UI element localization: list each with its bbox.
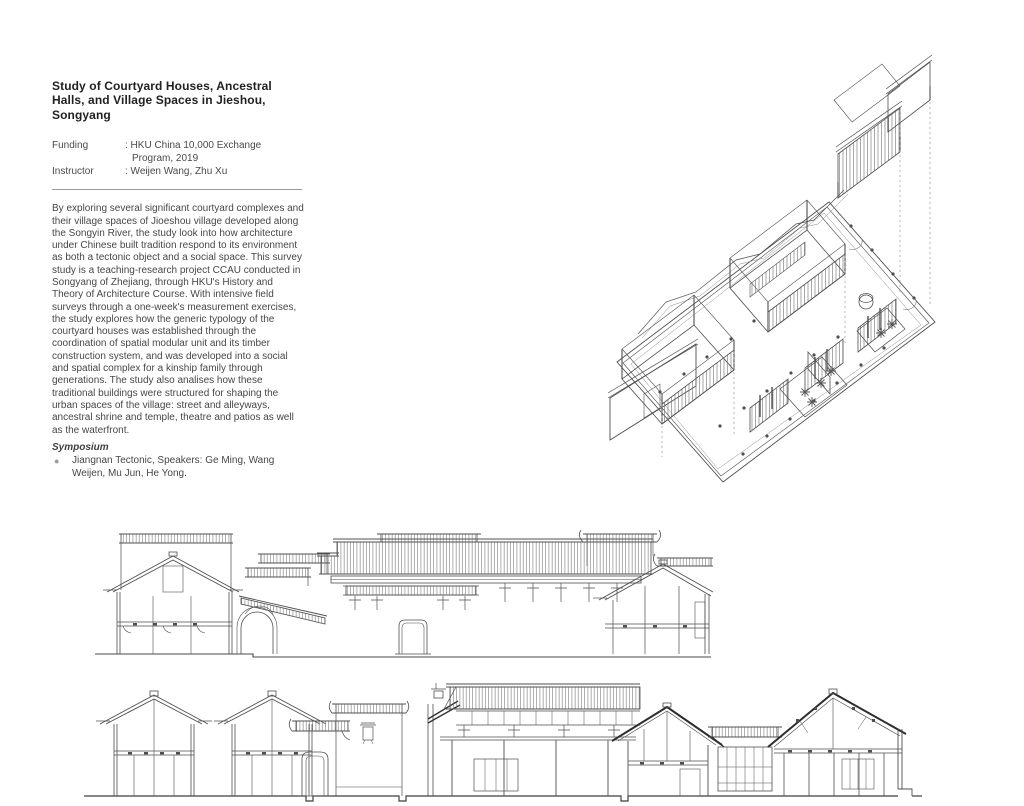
ground-floor-plate: [617, 202, 935, 482]
instructor-label: Instructor: [52, 165, 125, 178]
gate-wall: [289, 701, 409, 796]
portfolio-page: Study of Courtyard Houses, Ancestral Hal…: [0, 0, 1024, 806]
funding-value-line1: : HKU China 10,000 Exchange: [125, 139, 306, 152]
instructor-row: Instructor : Weijen Wang, Zhu Xu: [52, 165, 306, 178]
page-title: Study of Courtyard Houses, Ancestral Hal…: [52, 79, 304, 122]
left-house-section: [103, 534, 243, 654]
funding-label: Funding: [52, 139, 125, 152]
bullet-icon: ●: [52, 455, 72, 480]
street-wall-and-main-roof: [245, 534, 653, 654]
funding-value-line2: Program, 2019: [125, 152, 306, 165]
right-gable-house: [768, 689, 912, 796]
exploded-axonometric-figure: [598, 2, 1022, 502]
exploded-axonometric-drawing: [598, 2, 1022, 502]
funding-value: : HKU China 10,000 Exchange Program, 201…: [125, 139, 306, 165]
house-section-b: [214, 691, 330, 796]
arched-passage: [237, 596, 327, 654]
funding-row: Funding : HKU China 10,000 Exchange Prog…: [52, 139, 306, 165]
street-elevation-drawing: [92, 526, 714, 666]
symposium-heading: Symposium: [52, 442, 306, 455]
symposium-list-item: ● Jiangnan Tectonic, Speakers: Ge Ming, …: [52, 455, 306, 480]
ground-line: [95, 654, 711, 657]
info-column: Study of Courtyard Houses, Ancestral Hal…: [52, 79, 306, 481]
project-meta: Funding : HKU China 10,000 Exchange Prog…: [52, 139, 306, 178]
street-elevation-figure: [92, 526, 714, 666]
ground-line: [84, 796, 922, 801]
project-description: By exploring several significant courtya…: [52, 203, 306, 437]
middle-gable-section: [612, 703, 722, 796]
house-section-a: [96, 691, 212, 796]
longitudinal-section-drawing: [84, 679, 924, 803]
upper-floor-fragments: [622, 55, 932, 424]
main-hall-section: [428, 683, 640, 796]
instructor-value: : Weijen Wang, Zhu Xu: [125, 165, 306, 178]
longitudinal-section-figure: [84, 679, 924, 803]
symposium-section: Symposium ● Jiangnan Tectonic, Speakers:…: [52, 442, 306, 481]
symposium-item-text: Jiangnan Tectonic, Speakers: Ge Ming, Wa…: [72, 455, 306, 480]
section-divider: [52, 189, 302, 190]
courtyard-screen-building: [708, 727, 782, 791]
